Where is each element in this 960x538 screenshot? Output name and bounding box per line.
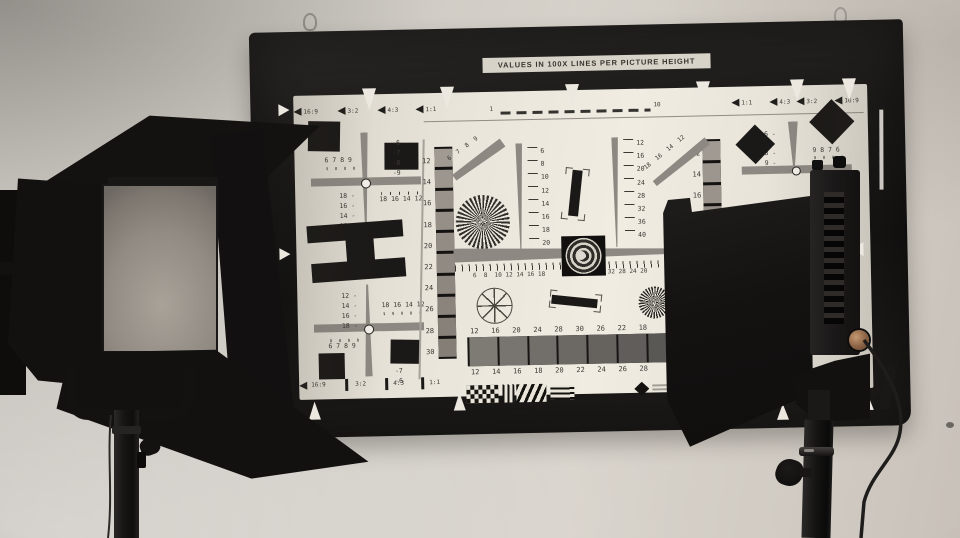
- photo-scene: VALUES IN 100X LINES PER PICTURE HEIGHT …: [0, 0, 960, 538]
- aspect-flag: [415, 105, 423, 113]
- frame-triangle-bottom: [862, 394, 874, 410]
- checkerboard-pattern: [466, 385, 498, 404]
- vertical-bars-pattern: [502, 384, 514, 402]
- hanging-hook-left: [303, 13, 317, 31]
- aspect-label: 3:2: [806, 99, 817, 106]
- grayscale-bottom-labels: 12 14 16 18 20 22 24 26 28: [471, 366, 648, 377]
- frame-triangle-bottom: [453, 392, 465, 410]
- chart-logo-text: [652, 384, 674, 386]
- frame-triangle-top: [362, 88, 376, 110]
- wedge-b-numbers: 12 16 20 24 28 32 36 40: [636, 137, 646, 243]
- cross-tr-fan: [786, 121, 801, 167]
- frame-triangle-top: [696, 81, 710, 103]
- frame-triangle-top: [790, 79, 804, 101]
- cross-tr-right-numbers: 9 8 7 6: [812, 147, 840, 154]
- aspect-label: 1:1: [741, 100, 752, 107]
- cross-tl-right-column: -6 -7 -8 -9: [392, 138, 401, 178]
- aspect-bar: [345, 379, 348, 391]
- vertical-wedge-b: [608, 137, 623, 247]
- aspect-bar: [421, 377, 424, 389]
- top-ruler-end: 10: [653, 102, 660, 108]
- aspect-flag: [337, 107, 345, 115]
- frame-triangle-top: [842, 78, 856, 100]
- aspect-label: 4:3: [387, 108, 398, 115]
- frame-arrow-left: [279, 248, 290, 260]
- frame-triangle-top: [440, 87, 454, 109]
- top-ruler-dashes: [501, 108, 651, 114]
- cross-bl-center-dot: [364, 324, 374, 334]
- center-target: [561, 235, 606, 276]
- siemens-star-small: [638, 286, 671, 319]
- cross-bl-left-column: 12 - 14 - 16 - 18 -: [341, 291, 357, 331]
- cross-tl-ticks: [327, 167, 361, 171]
- frame-arrow-left: [278, 104, 289, 116]
- wedge-a-ticks: [527, 147, 539, 249]
- vertical-wedge-a: [512, 143, 527, 251]
- aspect-label: 16:9: [311, 382, 326, 389]
- aspect-flag: [299, 382, 307, 390]
- cross-tr-center-dot: [792, 166, 801, 175]
- test-chart-assembly: VALUES IN 100X LINES PER PICTURE HEIGHT …: [249, 19, 911, 439]
- horizontal-bars-pattern: [550, 385, 574, 399]
- aspect-label: 1:1: [425, 107, 436, 114]
- aspect-label: 4:3: [393, 381, 404, 388]
- frame-triangle-bottom: [777, 404, 789, 420]
- aspect-label: 3:2: [347, 109, 358, 116]
- top-ruler-start: 1: [489, 107, 493, 113]
- chart-logo-text: [652, 388, 670, 390]
- aspect-label: 1:1: [429, 380, 440, 387]
- chart-paper: 1 10 16:9 3:2 4:3 1:1 1:1 4:3 3:2 16:9: [293, 84, 873, 400]
- cross-tl-top-numbers: 6 7 8 9: [324, 157, 352, 164]
- left-gray-patch-column: [434, 147, 456, 359]
- aspect-bar: [385, 378, 388, 390]
- siemens-star-large: [455, 194, 510, 249]
- slanted-bar-horizontal: [549, 290, 603, 313]
- aspect-flag: [731, 99, 739, 107]
- aspect-label: 16:9: [303, 109, 318, 116]
- aspect-flag: [293, 108, 301, 116]
- cross-bl-bottom-numbers: 6 7 8 9: [328, 343, 356, 350]
- chart-black-diamond: [809, 99, 854, 144]
- chart-black-square: [319, 353, 346, 380]
- aspect-flag: [377, 106, 385, 114]
- frame-triangle-bottom: [309, 401, 321, 419]
- grayscale-band: [467, 332, 738, 367]
- spoke-wheel: [476, 287, 513, 324]
- aspect-label: 4:3: [779, 100, 790, 107]
- frame-arrow-right: [851, 242, 863, 256]
- left-scale-numbers: 12 14 16 18 20 22 24 26 28 30: [412, 151, 434, 363]
- wedge-a-numbers: 6 8 10 12 14 16 18 20: [540, 145, 550, 251]
- diagonal-stripes-pattern: [516, 384, 546, 403]
- center-ruler-left-numbers: 6 8 10 12 14 16 18: [473, 272, 545, 280]
- aspect-label: 3:2: [355, 382, 366, 389]
- aspect-flag: [769, 98, 777, 106]
- frame-reflection-streak: [879, 110, 883, 190]
- frame-triangle-top: [565, 84, 579, 106]
- cross-tr-ticks: [815, 155, 851, 159]
- slanted-bar-vertical: [561, 167, 590, 221]
- frame-triangle-bottom: [839, 392, 851, 408]
- top-ruler-underline: [424, 112, 864, 122]
- wedge-b-ticks: [623, 139, 635, 243]
- wall-dot: [946, 422, 954, 428]
- chart-black-square: [308, 121, 340, 151]
- i-beam-mark: [306, 219, 410, 286]
- cross-tl-center-dot: [361, 178, 371, 188]
